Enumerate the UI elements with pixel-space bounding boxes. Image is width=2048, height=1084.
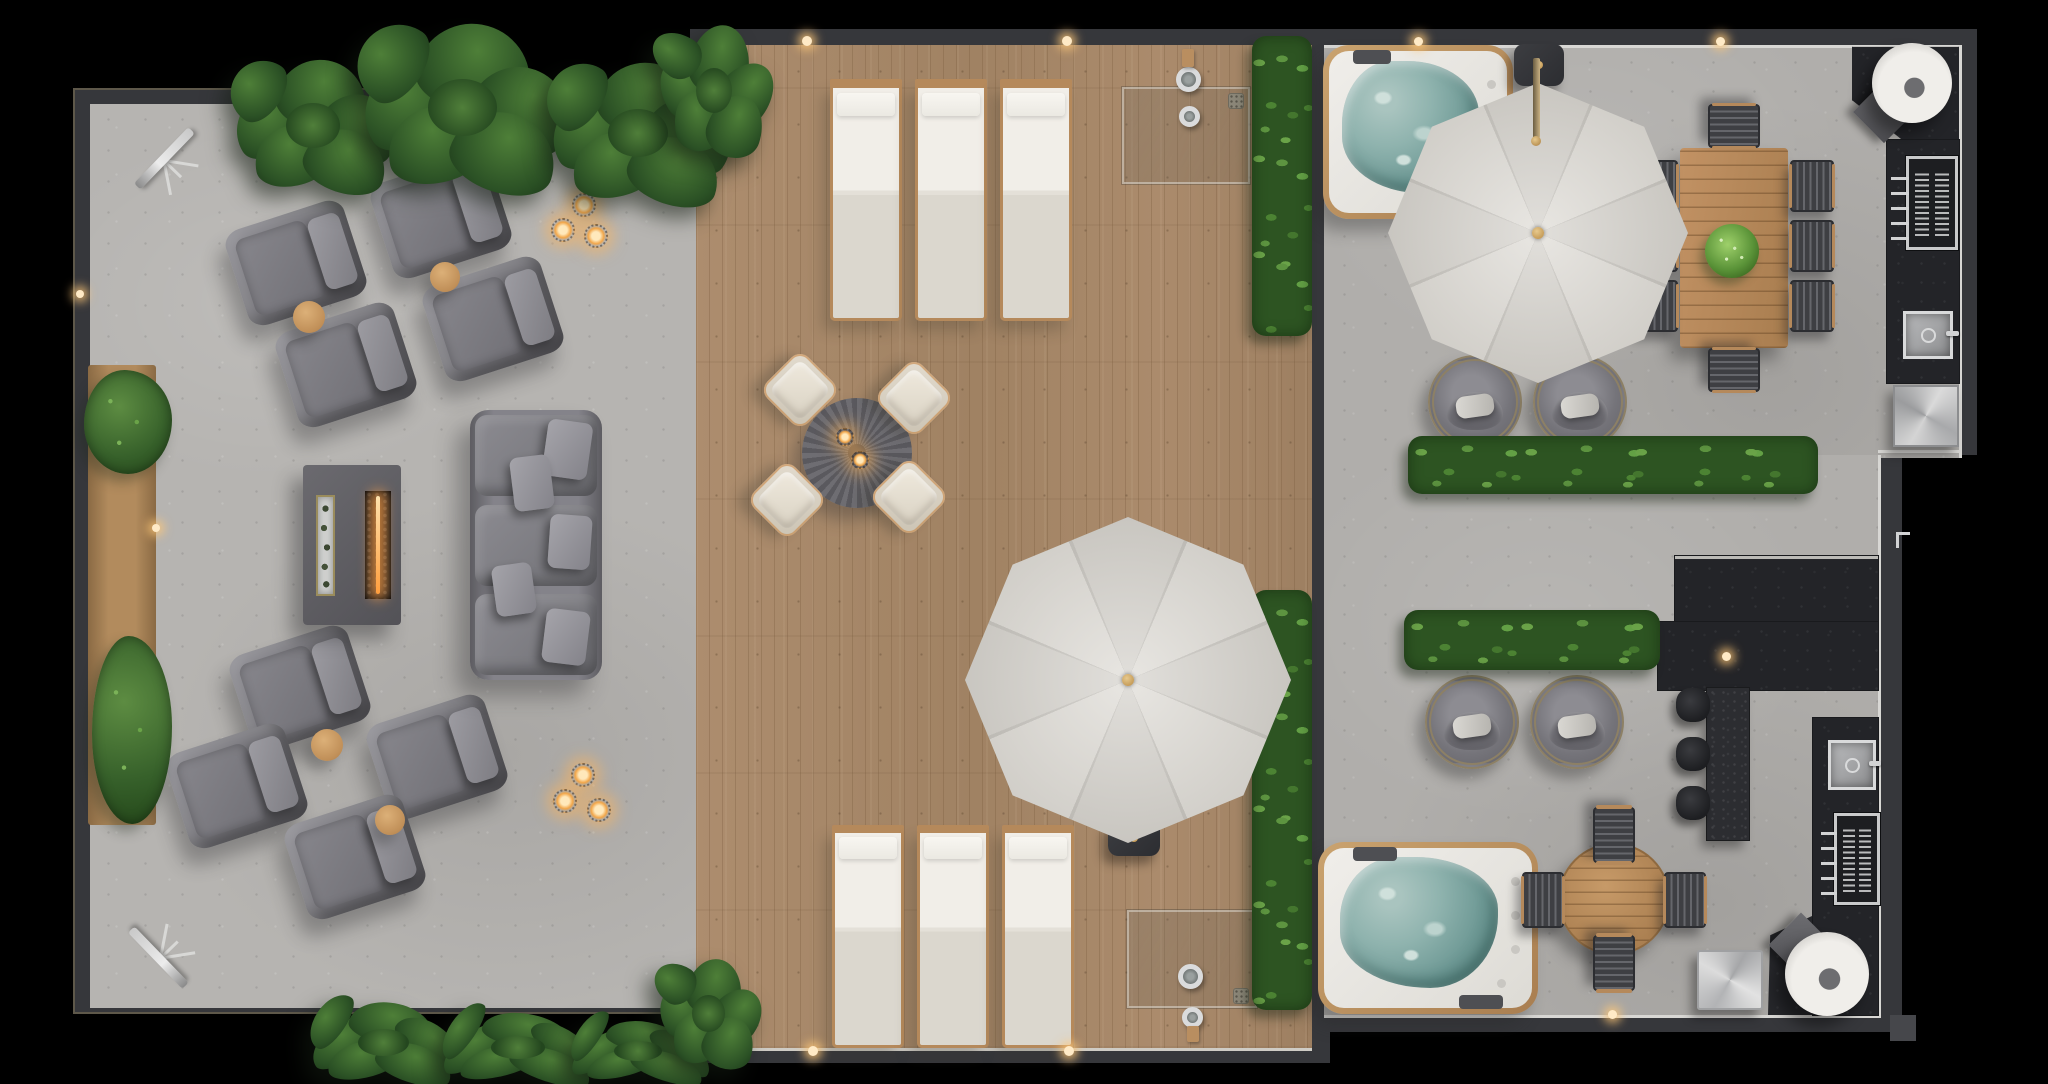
wall-light <box>1608 1010 1617 1019</box>
dining-chair <box>1522 872 1564 928</box>
bar-light <box>1722 652 1731 661</box>
dining-chair <box>1790 160 1834 212</box>
tropical-plants <box>655 20 775 170</box>
hedge-row <box>1408 436 1818 494</box>
bar-stool <box>1676 688 1710 722</box>
hedge-row <box>1404 610 1660 670</box>
bar-stool <box>1676 737 1710 771</box>
step-edge <box>1878 450 1959 453</box>
umbrella-arm <box>1533 58 1540 138</box>
dining-chair <box>1708 348 1760 392</box>
sun-lounger <box>832 828 904 1048</box>
candle-lantern <box>551 218 575 242</box>
candle-lantern <box>553 789 577 813</box>
grill <box>1906 156 1958 250</box>
door-handle <box>1896 532 1910 548</box>
pizza-oven <box>1785 932 1869 1016</box>
table-candle <box>836 428 854 446</box>
dining-chair <box>1790 280 1834 332</box>
sun-lounger <box>915 83 987 321</box>
dining-chair <box>1593 935 1635 991</box>
sun-lounger <box>1000 83 1072 321</box>
bar-front <box>1658 622 1878 690</box>
wall-light <box>1062 36 1072 46</box>
table-candle <box>851 451 869 469</box>
bar-stool <box>1676 786 1710 820</box>
shower-valve <box>1182 1007 1203 1028</box>
shower-valve <box>1179 106 1200 127</box>
hedge-vertical <box>1252 36 1312 336</box>
kitchen-sink <box>1903 311 1953 359</box>
drain-pipe <box>1890 1015 1916 1041</box>
table-plant <box>1705 224 1759 278</box>
side-table <box>311 729 343 761</box>
swivel-chair <box>1425 675 1519 769</box>
wall-light <box>808 1046 818 1056</box>
dining-chair <box>1708 104 1760 148</box>
swivel-chair <box>1530 675 1624 769</box>
shower-drain <box>1233 988 1249 1004</box>
candle-lantern <box>571 763 595 787</box>
shower-head <box>1178 964 1203 989</box>
dining-chair <box>1664 872 1706 928</box>
shower-wood-mount <box>1182 49 1194 67</box>
wall-light <box>152 524 160 532</box>
sun-lounger <box>917 828 989 1048</box>
planter-bush <box>84 370 172 474</box>
dining-chair <box>1790 220 1834 272</box>
fire-pit-table <box>303 465 401 625</box>
stainless-cube-table <box>1697 950 1763 1010</box>
wall-light <box>802 36 812 46</box>
wall-light <box>76 290 84 298</box>
candle-lantern <box>584 224 608 248</box>
wall-light <box>1064 1046 1074 1056</box>
shower-head <box>1176 67 1201 92</box>
planter-bush <box>92 636 172 824</box>
kitchen-sink <box>1828 740 1876 790</box>
side-table <box>293 301 325 333</box>
grill <box>1834 813 1880 905</box>
pizza-oven <box>1872 43 1952 123</box>
deck-umbrella <box>965 517 1291 843</box>
shower-wood-mount <box>1187 1026 1199 1042</box>
bar-back-wall <box>1675 556 1878 626</box>
tropical-plants <box>655 955 765 1079</box>
side-table <box>430 262 460 292</box>
side-table <box>375 805 405 835</box>
wall-light <box>1716 37 1725 46</box>
dining-chair <box>1593 807 1635 863</box>
outdoor-fridge <box>1893 385 1959 447</box>
sun-lounger <box>830 83 902 321</box>
sun-lounger <box>1002 828 1074 1048</box>
candle-lantern <box>587 798 611 822</box>
sectional-sofa <box>470 410 602 680</box>
wall-light <box>1414 37 1423 46</box>
bar-counter <box>1707 688 1749 840</box>
hot-tub <box>1318 842 1538 1014</box>
floor-plan-stage <box>0 0 2048 1084</box>
shower-drain <box>1228 93 1244 109</box>
